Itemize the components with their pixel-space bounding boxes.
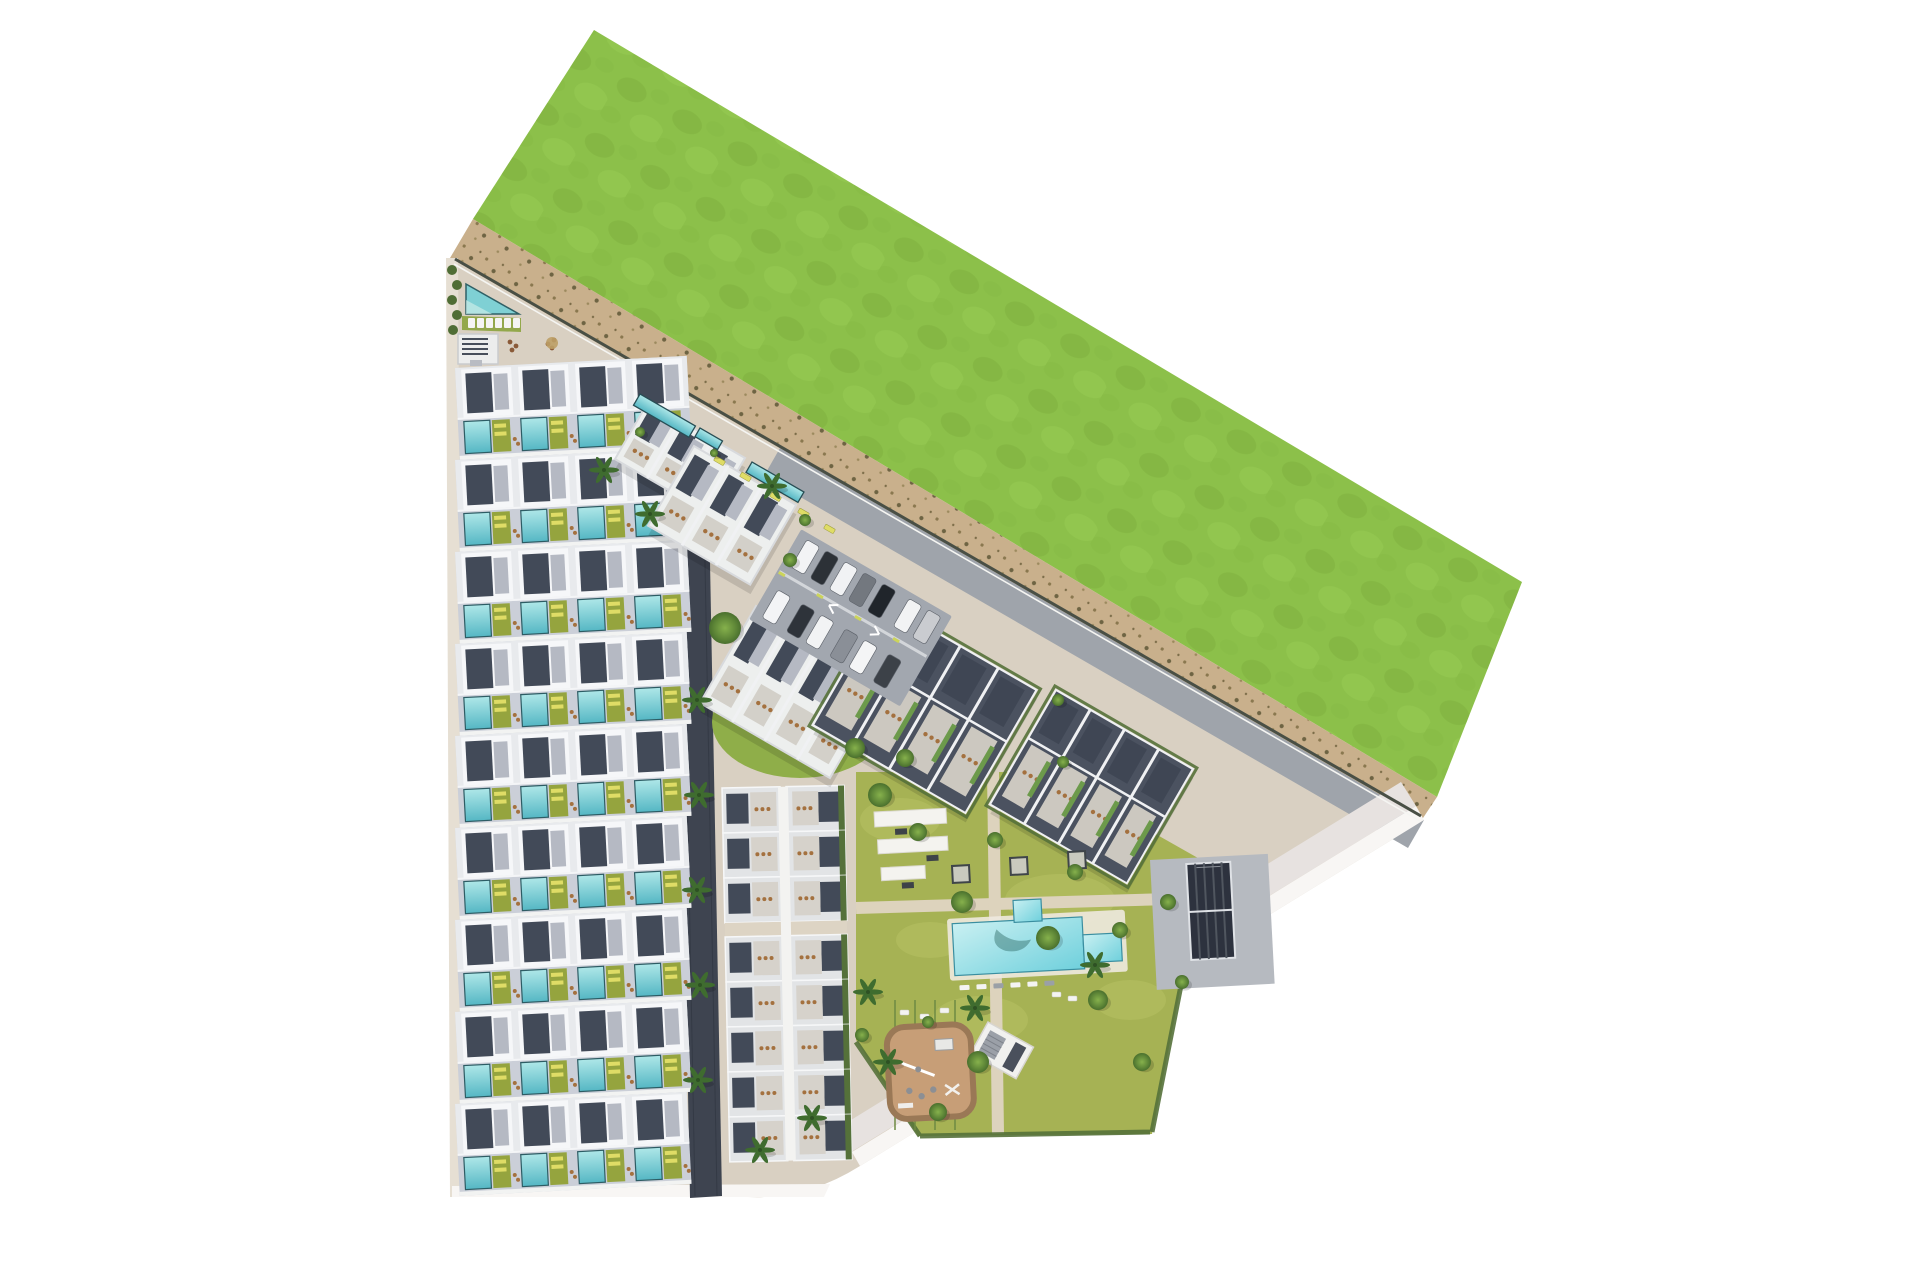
- townhouse-row: [455, 632, 691, 736]
- townhouse-row: [455, 1000, 691, 1104]
- cabana: [952, 865, 970, 883]
- townhouse-row: [455, 1092, 691, 1196]
- site-plan-rendering: Aerial top-down 3D site plan of a coasta…: [0, 0, 1920, 1280]
- townhouse-row: [455, 816, 691, 920]
- site-plan-stage: Aerial top-down 3D site plan of a coasta…: [0, 0, 1920, 1280]
- townhouse-row: [455, 540, 691, 644]
- padel-court: [1150, 854, 1275, 990]
- playground: [886, 1024, 975, 1120]
- townhouse-row: [455, 908, 691, 1012]
- townhouse-row: [455, 724, 691, 828]
- apartment-strip-south: [722, 785, 852, 1161]
- cabana: [1010, 857, 1028, 875]
